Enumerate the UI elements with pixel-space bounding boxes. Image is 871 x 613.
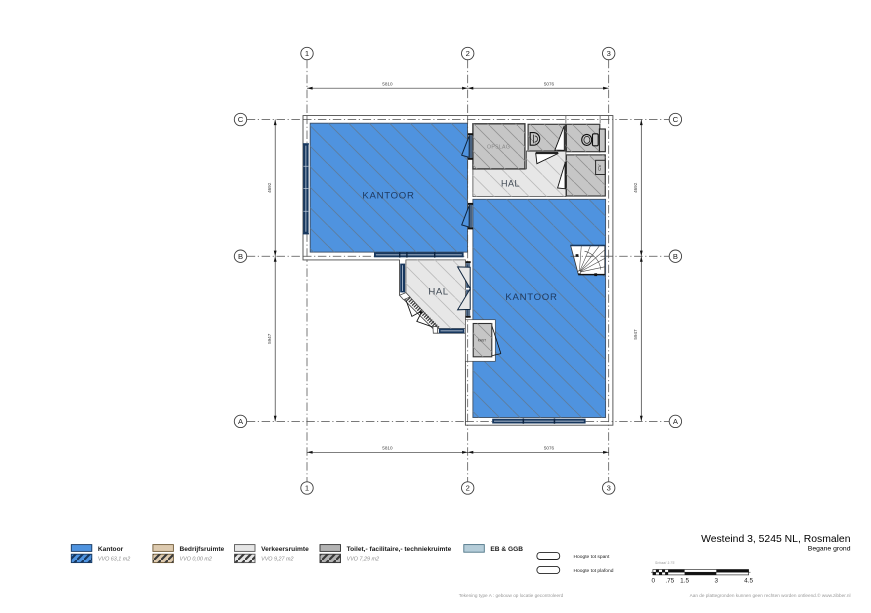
svg-text:Bedrijfsruimte: Bedrijfsruimte [180,546,225,553]
svg-text:Westeind 3, 5245 NL, Rosmalen: Westeind 3, 5245 NL, Rosmalen [701,534,851,545]
svg-text:Begane grond: Begane grond [808,546,851,553]
svg-text:5947: 5947 [267,333,272,344]
svg-text:B: B [673,252,678,261]
svg-text:1: 1 [305,49,309,58]
svg-text:5076: 5076 [544,82,555,87]
svg-text:5810: 5810 [382,82,393,87]
svg-text:1.5: 1.5 [680,577,689,584]
svg-text:3: 3 [607,484,611,493]
svg-text:4692: 4692 [633,182,638,193]
svg-text:Aan de plattegronden kunnen ge: Aan de plattegronden kunnen geen rechten… [690,592,851,598]
svg-text:C: C [238,115,244,124]
svg-text:VVO 9,27 m2: VVO 9,27 m2 [261,557,293,563]
svg-text:2: 2 [466,484,470,493]
svg-text:C: C [673,115,679,124]
svg-text:Toilet,- facilitaire,- technie: Toilet,- facilitaire,- techniekruimte [347,546,452,553]
svg-text:Kantoor: Kantoor [98,546,124,553]
svg-text:Hoogte tot plafond: Hoogte tot plafond [574,568,614,574]
svg-text:4692: 4692 [267,182,272,193]
svg-text:B: B [238,252,243,261]
svg-text:0: 0 [652,577,656,584]
svg-text:VVO 7,29 m2: VVO 7,29 m2 [347,557,379,563]
svg-text:HAL: HAL [428,287,448,298]
svg-text:Tekening type A : gebouw op lo: Tekening type A : gebouw op locatie geco… [459,593,564,598]
svg-text:HAL: HAL [501,179,520,189]
svg-text:VVO 63,1 m2: VVO 63,1 m2 [98,557,130,563]
svg-text:3: 3 [607,49,611,58]
svg-text:OPSLAG: OPSLAG [487,145,510,151]
svg-text:KANTOOR: KANTOOR [362,191,414,202]
svg-text:4.5: 4.5 [744,577,753,584]
svg-text:5810: 5810 [382,446,393,451]
svg-text:Verkeersruimte: Verkeersruimte [261,546,309,553]
svg-text:VVO 0,00 m2: VVO 0,00 m2 [180,557,212,563]
svg-text:5947: 5947 [633,329,638,340]
svg-text:.75: .75 [665,577,674,584]
svg-text:3: 3 [715,577,719,584]
svg-text:KANTOOR: KANTOOR [505,292,557,303]
svg-text:2: 2 [466,49,470,58]
svg-text:EB & GGB: EB & GGB [490,546,523,553]
svg-text:1: 1 [305,484,309,493]
svg-text:5076: 5076 [544,446,555,451]
svg-text:CV: CV [597,163,602,170]
svg-text:Schaal 1:75: Schaal 1:75 [655,561,675,565]
svg-text:Hoogte tot spant: Hoogte tot spant [574,554,611,560]
svg-text:KAST: KAST [478,339,486,343]
